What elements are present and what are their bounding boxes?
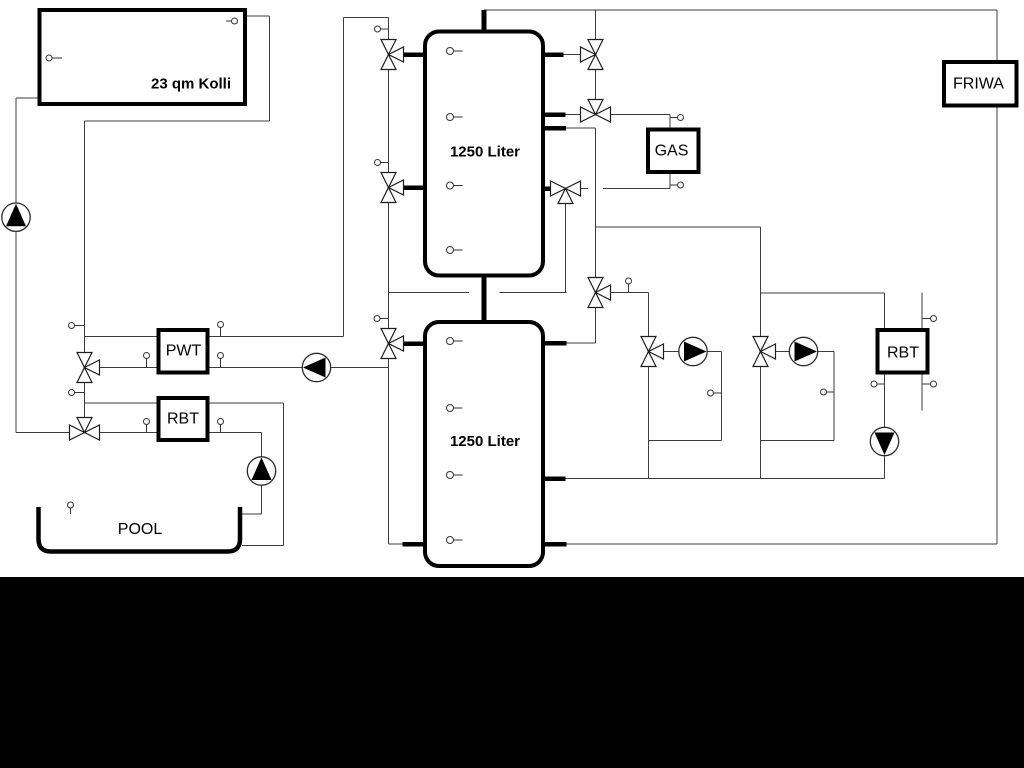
svg-text:GAS: GAS — [655, 143, 689, 160]
svg-text:FRIWA: FRIWA — [953, 76, 1004, 93]
svg-text:1250 Liter: 1250 Liter — [450, 144, 520, 161]
svg-text:PWT: PWT — [166, 343, 202, 360]
svg-text:RBT: RBT — [887, 345, 919, 362]
svg-text:POOL: POOL — [118, 521, 163, 538]
svg-text:RBT: RBT — [167, 411, 199, 428]
svg-text:23 qm Kolli: 23 qm Kolli — [151, 76, 231, 93]
svg-text:1250 Liter: 1250 Liter — [450, 433, 520, 450]
